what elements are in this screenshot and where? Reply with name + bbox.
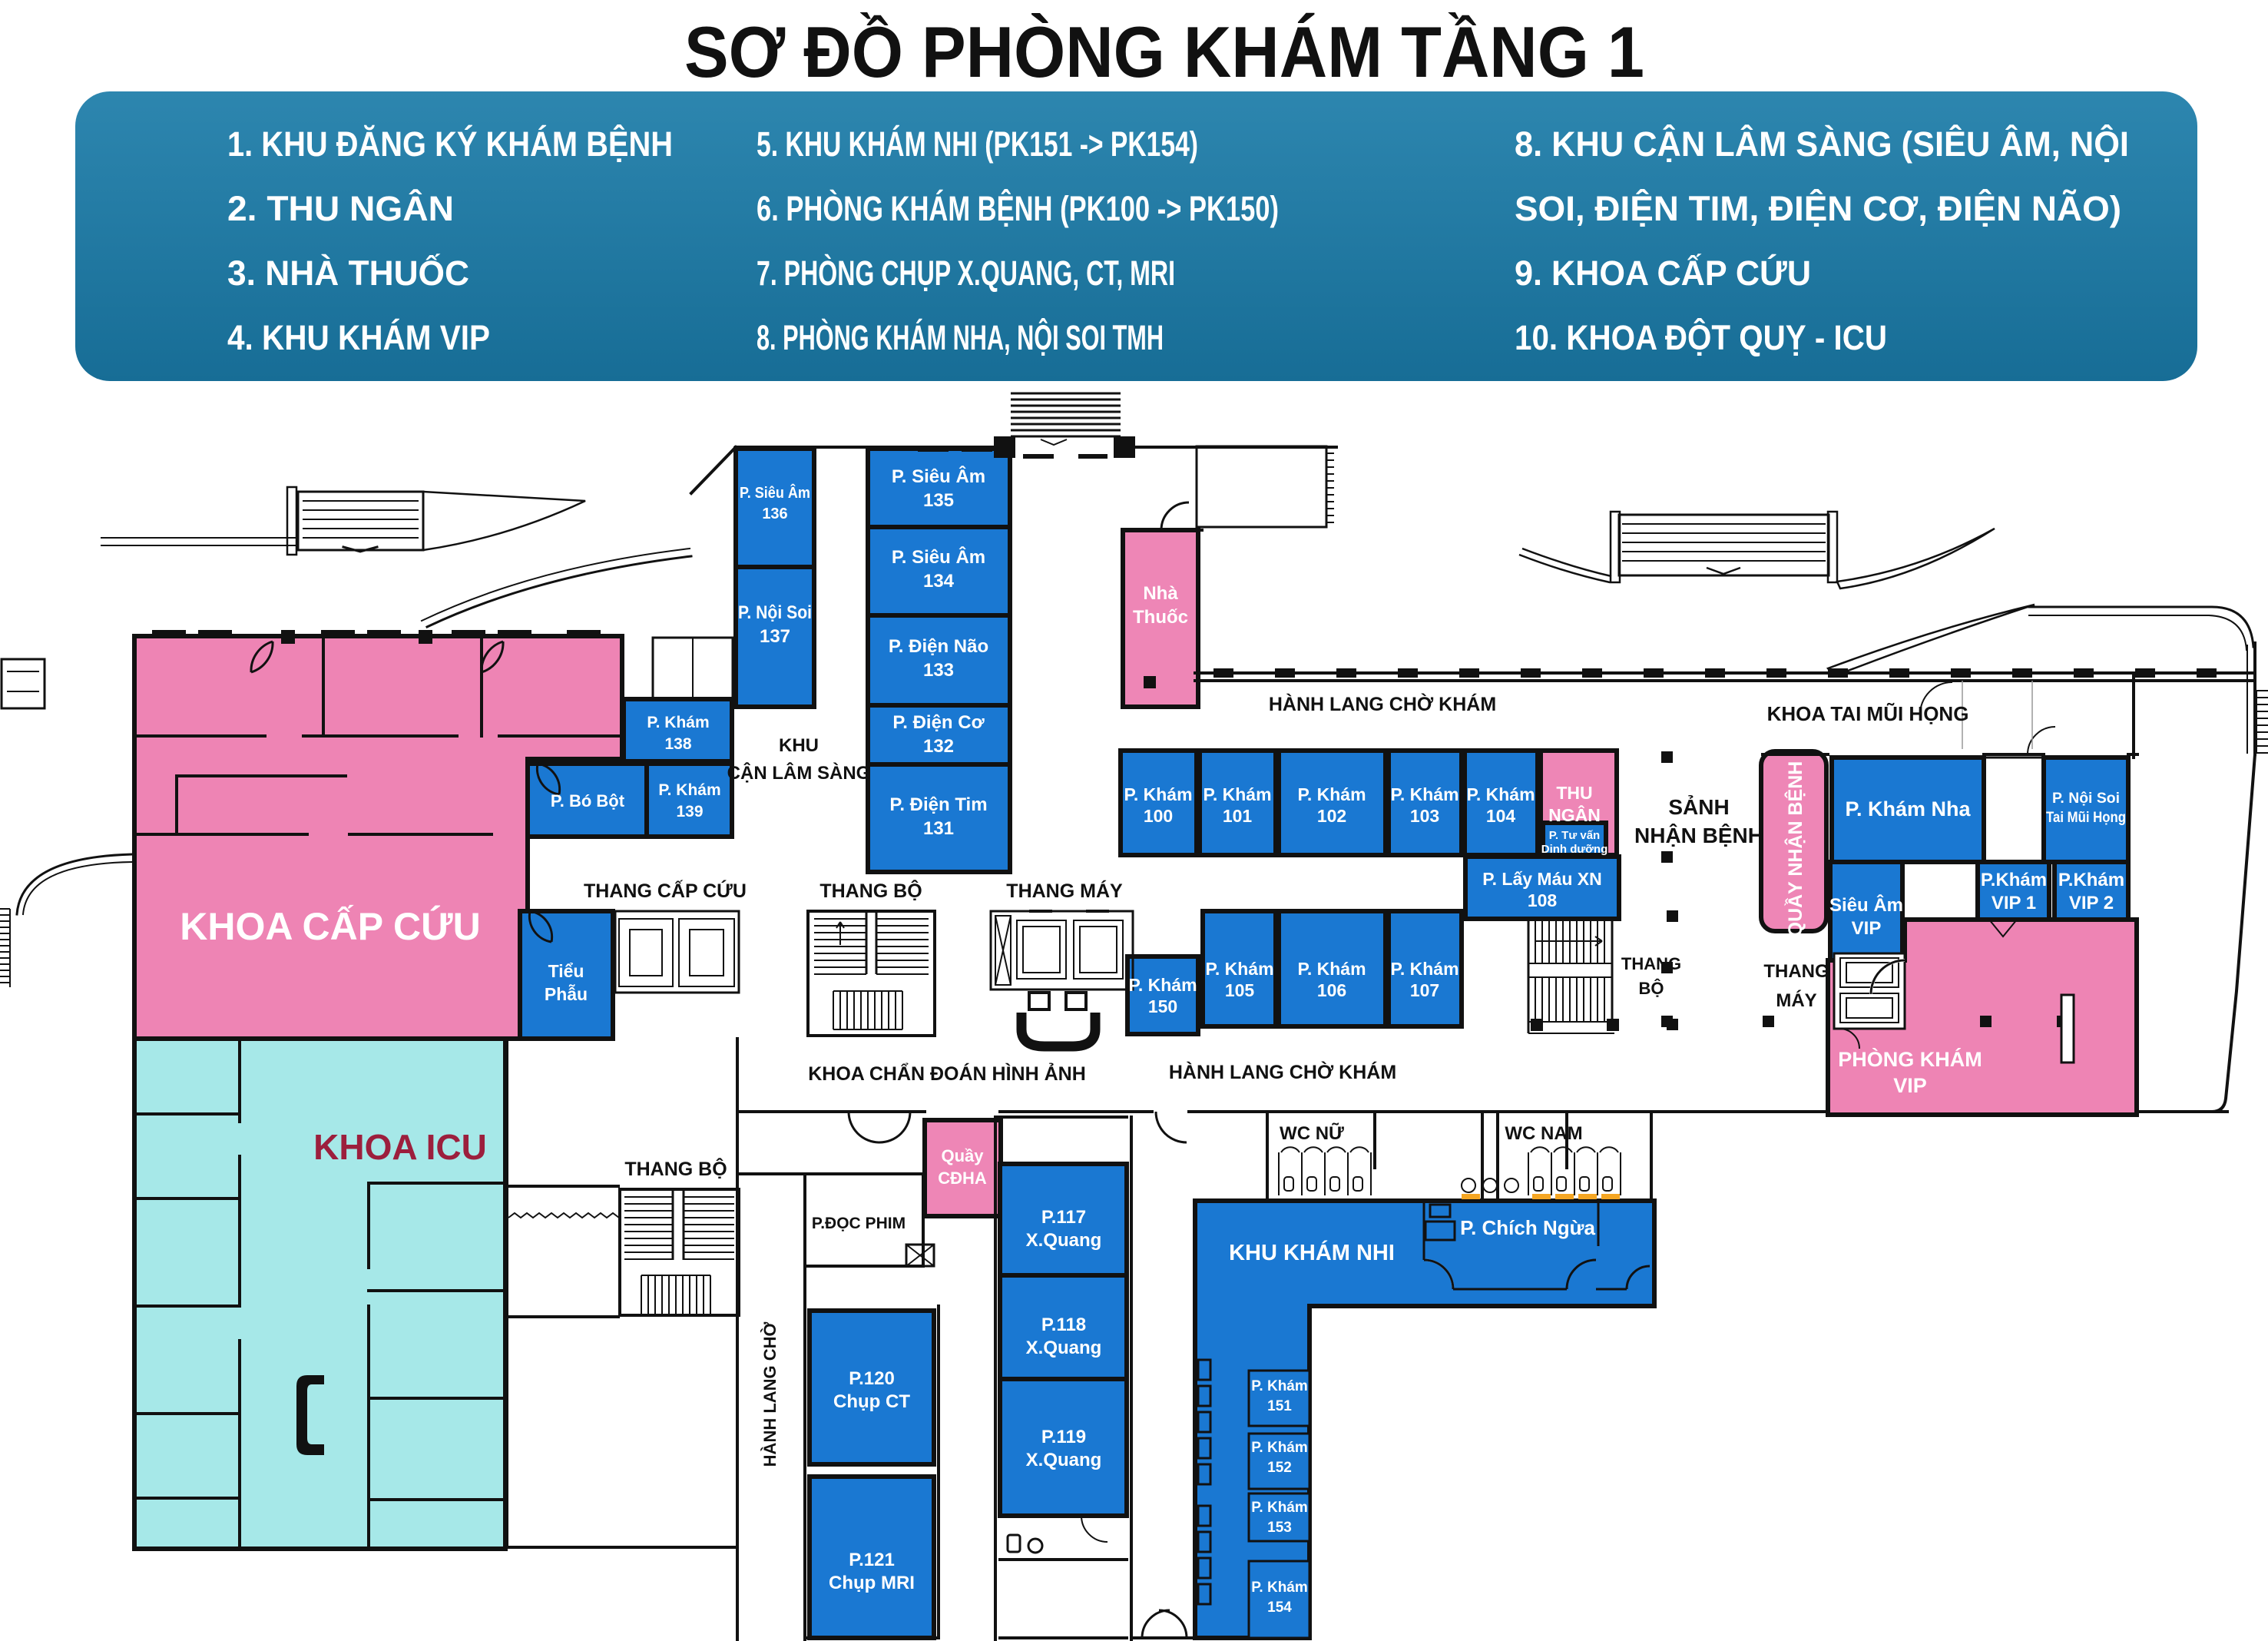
svg-text:Siêu Âm: Siêu Âm — [1829, 894, 1903, 916]
svg-text:P. Chích Ngừa: P. Chích Ngừa — [1460, 1216, 1595, 1239]
svg-text:P. Điện Cơ: P. Điện Cơ — [892, 712, 985, 733]
svg-text:CĐHA: CĐHA — [938, 1169, 987, 1188]
svg-text:THANG MÁY: THANG MÁY — [1006, 880, 1123, 902]
svg-text:P. Tư vấn: P. Tư vấn — [1549, 829, 1600, 842]
svg-text:P. Khám: P. Khám — [1205, 959, 1273, 979]
svg-text:7. PHÒNG CHỤP X.QUANG, CT, MRI: 7. PHÒNG CHỤP X.QUANG, CT, MRI — [757, 254, 1175, 293]
svg-text:P. Khám: P. Khám — [1297, 784, 1366, 804]
svg-text:VIP: VIP — [1893, 1074, 1927, 1097]
svg-text:P.Khám: P.Khám — [2058, 870, 2124, 890]
svg-text:P. Khám: P. Khám — [1251, 1580, 1308, 1596]
svg-text:108: 108 — [1528, 890, 1558, 910]
svg-text:P. Khám: P. Khám — [1466, 784, 1535, 804]
svg-text:101: 101 — [1223, 806, 1253, 826]
svg-text:104: 104 — [1486, 806, 1516, 826]
svg-text:Nhà: Nhà — [1143, 583, 1178, 604]
svg-text:KHOA CẤP CỨU: KHOA CẤP CỨU — [180, 905, 481, 948]
svg-text:KHU: KHU — [779, 735, 819, 756]
svg-text:135: 135 — [923, 490, 954, 511]
svg-text:103: 103 — [1410, 806, 1439, 826]
svg-text:KHOA ICU: KHOA ICU — [313, 1127, 487, 1167]
svg-text:Tai Mũi Họng: Tai Mũi Họng — [2046, 810, 2126, 826]
svg-text:100: 100 — [1144, 806, 1173, 826]
svg-text:P. Khám: P. Khám — [1251, 1500, 1308, 1516]
svg-text:P. Khám: P. Khám — [1297, 959, 1366, 979]
svg-text:9. KHOA CẤP CỨU: 9. KHOA CẤP CỨU — [1515, 254, 1811, 293]
svg-text:106: 106 — [1317, 980, 1346, 1000]
svg-text:HÀNH LANG CHỜ KHÁM: HÀNH LANG CHỜ KHÁM — [1269, 692, 1496, 715]
svg-text:154: 154 — [1267, 1600, 1292, 1616]
svg-text:NGÂN: NGÂN — [1548, 804, 1601, 825]
svg-text:139: 139 — [676, 803, 703, 820]
svg-text:P. Khám: P. Khám — [647, 714, 709, 731]
svg-text:5. KHU KHÁM NHI (PK151 -> PK15: 5. KHU KHÁM NHI (PK151 -> PK154) — [757, 124, 1198, 164]
svg-text:SOI, ĐIỆN TIM, ĐIỆN CƠ, ĐIỆN N: SOI, ĐIỆN TIM, ĐIỆN CƠ, ĐIỆN NÃO) — [1515, 189, 2121, 228]
svg-text:Phẫu: Phẫu — [545, 983, 588, 1004]
svg-text:WC NAM: WC NAM — [1505, 1123, 1582, 1144]
svg-text:131: 131 — [923, 818, 954, 839]
svg-text:P. Khám: P. Khám — [1203, 784, 1271, 804]
svg-text:4. KHU KHÁM VIP: 4. KHU KHÁM VIP — [227, 318, 490, 357]
svg-text:KHU KHÁM NHI: KHU KHÁM NHI — [1229, 1239, 1395, 1265]
svg-text:Quầy: Quầy — [941, 1146, 984, 1165]
svg-text:CẬN LÂM SÀNG: CẬN LÂM SÀNG — [727, 762, 871, 784]
svg-text:P.120: P.120 — [849, 1368, 895, 1389]
svg-text:P. Khám: P. Khám — [1390, 959, 1458, 979]
svg-text:VIP 2: VIP 2 — [2069, 893, 2114, 913]
svg-text:HÀNH LANG CHỜ: HÀNH LANG CHỜ — [760, 1321, 780, 1467]
svg-text:P. Khám: P. Khám — [1251, 1378, 1308, 1394]
svg-text:1. KHU ĐĂNG KÝ KHÁM BỆNH: 1. KHU ĐĂNG KÝ KHÁM BỆNH — [227, 124, 673, 164]
svg-text:138: 138 — [664, 735, 691, 753]
svg-text:150: 150 — [1148, 996, 1177, 1016]
svg-text:NHẬN BỆNH: NHẬN BỆNH — [1634, 824, 1763, 847]
svg-text:THANG BỘ: THANG BỘ — [624, 1157, 727, 1180]
svg-text:P. Nội Soi: P. Nội Soi — [738, 602, 812, 623]
svg-text:SƠ ĐỒ PHÒNG KHÁM TẦNG 1: SƠ ĐỒ PHÒNG KHÁM TẦNG 1 — [684, 12, 1644, 92]
svg-text:P.ĐỌC PHIM: P.ĐỌC PHIM — [812, 1215, 906, 1232]
svg-text:105: 105 — [1225, 980, 1255, 1000]
svg-text:X.Quang: X.Quang — [1026, 1230, 1102, 1251]
svg-text:P. Lấy Máu XN: P. Lấy Máu XN — [1482, 869, 1602, 889]
svg-text:8. PHÒNG KHÁM NHA, NỘI SOI TMH: 8. PHÒNG KHÁM NHA, NỘI SOI TMH — [757, 318, 1164, 357]
svg-text:133: 133 — [923, 660, 954, 681]
svg-text:X.Quang: X.Quang — [1026, 1338, 1102, 1358]
svg-text:102: 102 — [1317, 806, 1346, 826]
svg-text:KHOA CHẨN ĐOÁN HÌNH ẢNH: KHOA CHẨN ĐOÁN HÌNH ẢNH — [808, 1062, 1086, 1085]
svg-text:THU: THU — [1556, 783, 1592, 803]
svg-text:151: 151 — [1267, 1398, 1292, 1414]
svg-text:SẢNH: SẢNH — [1668, 794, 1729, 819]
svg-text:P. Khám: P. Khám — [1124, 784, 1192, 804]
svg-text:X.Quang: X.Quang — [1026, 1450, 1102, 1470]
svg-text:P. Khám: P. Khám — [658, 781, 720, 799]
svg-text:P.117: P.117 — [1041, 1207, 1086, 1228]
svg-text:VIP: VIP — [1852, 918, 1882, 939]
svg-text:P. Điện Tim: P. Điện Tim — [889, 794, 987, 815]
svg-text:P. Điện Não: P. Điện Não — [889, 636, 988, 657]
svg-text:KHOA TAI MŨI HỌNG: KHOA TAI MŨI HỌNG — [1767, 702, 1969, 725]
svg-text:P.118: P.118 — [1041, 1314, 1086, 1335]
svg-text:153: 153 — [1267, 1520, 1292, 1536]
svg-text:6. PHÒNG KHÁM BỆNH (PK100 -> P: 6. PHÒNG KHÁM BỆNH (PK100 -> PK150) — [757, 189, 1279, 228]
svg-text:132: 132 — [923, 736, 954, 757]
svg-text:152: 152 — [1267, 1460, 1292, 1476]
svg-text:Dinh dưỡng: Dinh dưỡng — [1541, 843, 1608, 856]
svg-text:P. Bó Bột: P. Bó Bột — [551, 791, 625, 811]
svg-text:P. Khám: P. Khám — [1251, 1440, 1308, 1456]
svg-text:THANG CẤP CỨU: THANG CẤP CỨU — [584, 879, 747, 902]
svg-text:THANG BỘ: THANG BỘ — [819, 879, 922, 902]
svg-text:Thuốc: Thuốc — [1133, 607, 1188, 628]
svg-text:P. Khám: P. Khám — [1390, 784, 1458, 804]
svg-text:P. Siêu Âm: P. Siêu Âm — [892, 546, 985, 568]
svg-text:QUẦY NHẬN BỆNH: QUẦY NHẬN BỆNH — [1783, 761, 1806, 937]
svg-text:P.Khám: P.Khám — [1981, 870, 2047, 890]
svg-text:107: 107 — [1410, 980, 1439, 1000]
svg-text:P.121: P.121 — [849, 1550, 895, 1570]
svg-text:THANG: THANG — [1621, 954, 1681, 973]
svg-text:P. Siêu Âm: P. Siêu Âm — [740, 483, 810, 502]
svg-text:MÁY: MÁY — [1776, 990, 1816, 1011]
svg-text:P. Nội Soi: P. Nội Soi — [2052, 791, 2120, 807]
svg-text:8. KHU CẬN LÂM SÀNG (SIÊU ÂM,: 8. KHU CẬN LÂM SÀNG (SIÊU ÂM, NỘI — [1515, 124, 2129, 164]
svg-text:Chụp CT: Chụp CT — [833, 1391, 910, 1412]
svg-text:THANG: THANG — [1763, 961, 1829, 982]
svg-text:3. NHÀ THUỐC: 3. NHÀ THUỐC — [227, 254, 469, 293]
svg-text:Tiểu: Tiểu — [548, 961, 584, 981]
svg-text:137: 137 — [760, 626, 790, 647]
svg-text:Chụp MRI: Chụp MRI — [829, 1573, 915, 1593]
svg-text:10. KHOA ĐỘT QUỴ - ICU: 10. KHOA ĐỘT QUỴ - ICU — [1515, 318, 1887, 357]
svg-text:P. Khám Nha: P. Khám Nha — [1845, 797, 1971, 820]
svg-text:P.119: P.119 — [1041, 1427, 1086, 1447]
svg-text:WC NỮ: WC NỮ — [1280, 1122, 1344, 1144]
svg-text:134: 134 — [923, 571, 955, 592]
svg-text:PHÒNG KHÁM: PHÒNG KHÁM — [1838, 1047, 1982, 1071]
svg-text:P. Khám: P. Khám — [1128, 975, 1197, 995]
svg-text:BỘ: BỘ — [1639, 979, 1664, 998]
svg-text:136: 136 — [762, 506, 787, 522]
svg-text:P. Siêu Âm: P. Siêu Âm — [892, 466, 985, 487]
svg-text:2. THU NGÂN: 2. THU NGÂN — [227, 189, 454, 228]
svg-text:VIP 1: VIP 1 — [1992, 893, 2036, 913]
svg-text:HÀNH LANG CHỜ KHÁM: HÀNH LANG CHỜ KHÁM — [1169, 1060, 1396, 1083]
